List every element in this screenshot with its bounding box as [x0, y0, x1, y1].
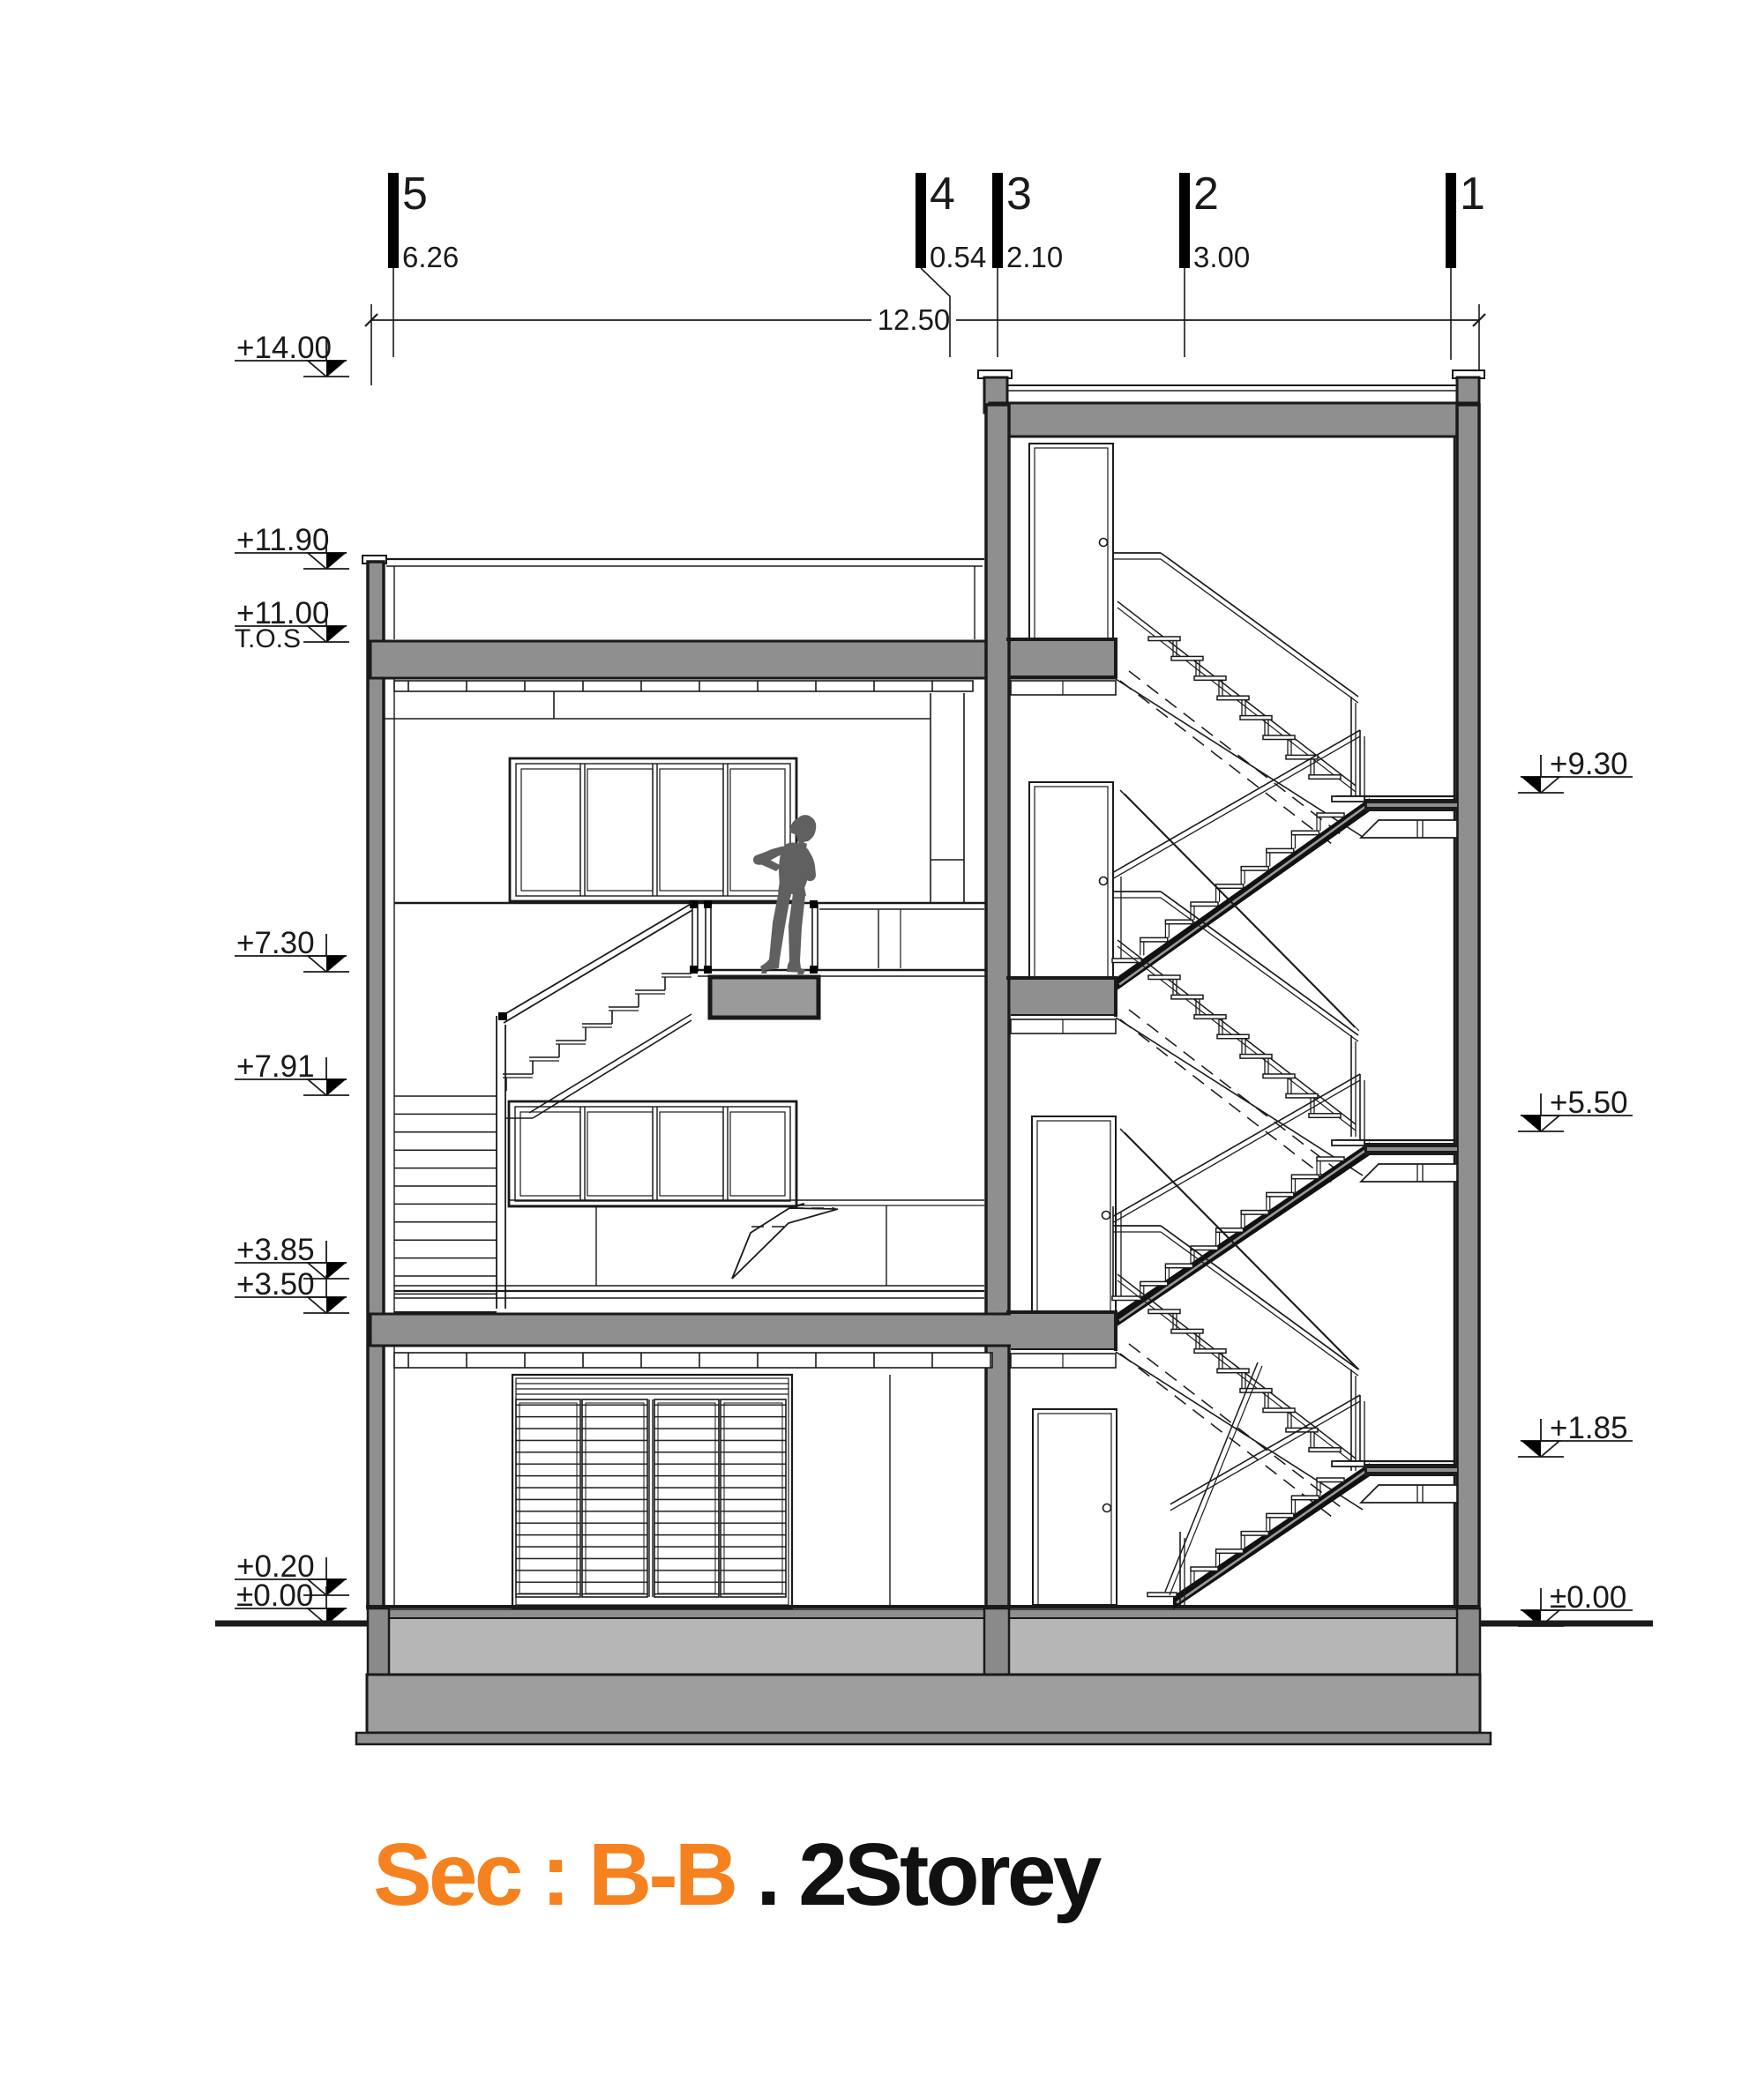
svg-text:3.00: 3.00	[1193, 241, 1250, 273]
svg-text:T.O.S: T.O.S	[235, 624, 301, 653]
svg-text:4: 4	[930, 168, 955, 220]
svg-text:6.26: 6.26	[402, 241, 459, 273]
svg-text:Sec : B-B . 2Storey: Sec : B-B . 2Storey	[373, 1825, 1102, 1924]
svg-text:1: 1	[1460, 168, 1485, 220]
svg-text:3: 3	[1006, 168, 1032, 220]
svg-text:2.10: 2.10	[1006, 241, 1063, 273]
svg-text:0.54: 0.54	[930, 241, 986, 273]
svg-text:12.50: 12.50	[878, 303, 951, 336]
svg-text:2: 2	[1193, 168, 1219, 220]
svg-text:5: 5	[402, 168, 428, 220]
